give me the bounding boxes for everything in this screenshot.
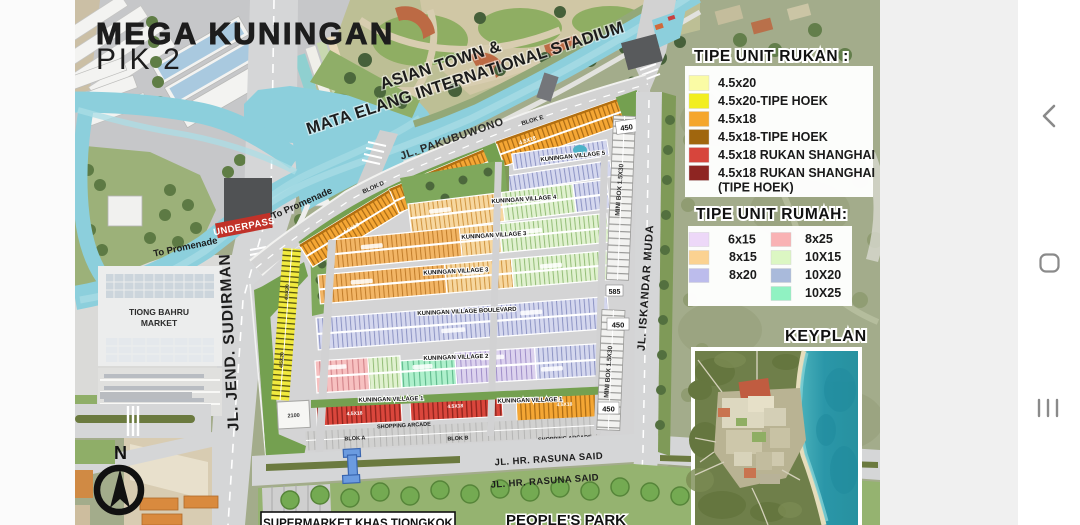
svg-text:4.5X20: 4.5X20 xyxy=(284,284,291,300)
svg-text:KEYPLAN: KEYPLAN xyxy=(785,328,867,345)
svg-text:4.5x18 RUKAN SHANGHAI: 4.5x18 RUKAN SHANGHAI xyxy=(718,166,875,180)
svg-text:4.5x20-TIPE HOEK: 4.5x20-TIPE HOEK xyxy=(718,94,828,108)
svg-text:PIK 2: PIK 2 xyxy=(96,43,182,76)
svg-text:4.5x20: 4.5x20 xyxy=(718,76,756,90)
svg-text:TIPE UNIT RUKAN :: TIPE UNIT RUKAN : xyxy=(694,48,849,65)
svg-text:585: 585 xyxy=(609,289,621,296)
svg-text:4.5X18: 4.5X18 xyxy=(347,411,363,418)
svg-text:10X25: 10X25 xyxy=(805,286,841,300)
svg-text:TIONG BAHRU: TIONG BAHRU xyxy=(129,307,189,317)
svg-text:(TIPE HOEK): (TIPE HOEK) xyxy=(718,181,794,195)
svg-text:4.5x18: 4.5x18 xyxy=(718,112,756,126)
svg-text:450: 450 xyxy=(612,321,625,330)
svg-text:2100: 2100 xyxy=(287,413,300,420)
svg-text:8x20: 8x20 xyxy=(729,268,757,282)
svg-text:450: 450 xyxy=(620,122,634,133)
svg-text:4.5x18-TIPE HOEK: 4.5x18-TIPE HOEK xyxy=(718,130,828,144)
svg-text:TIPE UNIT RUMAH:: TIPE UNIT RUMAH: xyxy=(696,206,848,223)
svg-text:4.5x18 RUKAN SHANGHAI: 4.5x18 RUKAN SHANGHAI xyxy=(718,148,875,162)
svg-text:MARKET: MARKET xyxy=(141,318,178,328)
svg-text:BLOK A: BLOK A xyxy=(344,435,365,442)
svg-text:4.5X18: 4.5X18 xyxy=(447,403,463,410)
svg-text:10X20: 10X20 xyxy=(805,268,841,282)
svg-text:BLOK B: BLOK B xyxy=(447,435,468,442)
svg-text:PEOPLE'S PARK: PEOPLE'S PARK xyxy=(506,512,626,525)
svg-text:6x15: 6x15 xyxy=(728,233,756,247)
svg-text:SUPERMARKET KHAS TIONGKOK: SUPERMARKET KHAS TIONGKOK xyxy=(263,518,453,525)
svg-text:4.5X20: 4.5X20 xyxy=(279,352,286,368)
svg-text:8x15: 8x15 xyxy=(729,250,757,264)
svg-text:8x25: 8x25 xyxy=(805,232,833,246)
svg-text:10X15: 10X15 xyxy=(805,250,841,264)
svg-text:450: 450 xyxy=(602,405,615,414)
svg-text:N: N xyxy=(114,443,127,463)
